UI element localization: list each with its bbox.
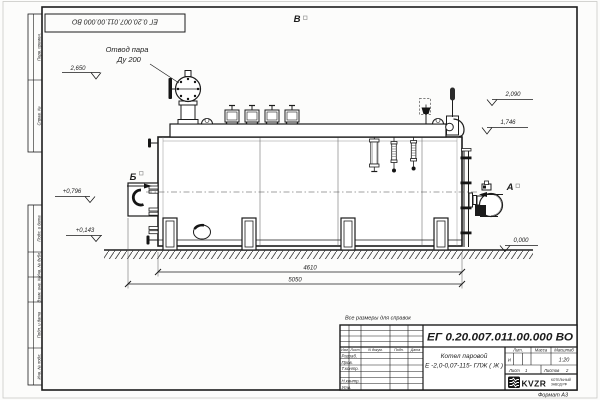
- sig-col: Изм: [341, 348, 348, 352]
- vent-valve: [148, 139, 158, 148]
- product-type: Е -2,0-0,07-115- ГЛЖ ( Ж ): [425, 364, 503, 370]
- svg-text:5050: 5050: [288, 278, 302, 284]
- sheet-value: 1: [525, 368, 527, 373]
- drawing-designation: ЕГ 0.20.007.011.00.000 ВО: [427, 332, 573, 344]
- sheet-label: Лист: [508, 368, 520, 373]
- scale-value: 1:20: [559, 358, 571, 364]
- logo-subtext: ЗАВОД РФ: [551, 383, 568, 387]
- burner-motor: [475, 205, 486, 216]
- ground-hatching: [104, 251, 533, 259]
- top-casing: [170, 124, 446, 137]
- svg-text:2,090: 2,090: [504, 92, 521, 98]
- gauge-column: [370, 137, 380, 172]
- svg-text:4610: 4610: [303, 266, 317, 272]
- hatch: [265, 106, 279, 125]
- drain-valve: [147, 236, 159, 245]
- svg-text:+0,143: +0,143: [76, 228, 95, 234]
- margin-label: Взам. инв. №: [37, 276, 42, 302]
- safety-valve: [446, 88, 464, 137]
- margin-label: Подп. и дата: [37, 311, 42, 338]
- svg-text:0,000: 0,000: [513, 238, 529, 244]
- boiler-drawing: Отвод пара Ду 200 В А Б 2,650 2,090: [55, 14, 538, 289]
- sig-col: Лист: [349, 348, 359, 352]
- sig-col: Подп.: [394, 348, 404, 352]
- ground-line: [104, 250, 533, 259]
- svg-text:2,650: 2,650: [69, 66, 86, 72]
- sig-row: Разраб.: [342, 354, 358, 359]
- drawing-sheet: Перв. примен. Справ. № Подп. и дата Инв.…: [0, 0, 600, 400]
- logo-subtext: КОТЕЛЬНЫЙ: [551, 378, 572, 382]
- format-note: Формат А3: [538, 393, 569, 399]
- steam-outlet-valve: [169, 71, 201, 125]
- top-stamp: ЕГ 0.20.007.011.00.000 ВО: [45, 14, 185, 32]
- elevation-0143: +0,143: [66, 228, 102, 242]
- svg-text:1,746: 1,746: [500, 120, 516, 126]
- sig-row: Т.контр.: [342, 366, 359, 371]
- dome-right: [433, 119, 444, 125]
- sig-col: Дата: [410, 348, 420, 352]
- manhole: [194, 225, 211, 239]
- margin-label: Справ. №: [37, 106, 42, 125]
- svg-text:Б: Б: [130, 172, 137, 183]
- top-stamp-code: ЕГ 0.20.007.011.00.000 ВО: [71, 18, 158, 25]
- title-block: Все размеры для справок ЕГ 0.20.007.011.…: [340, 316, 577, 399]
- sig-row: Утв.: [342, 385, 352, 390]
- hatch: [245, 106, 259, 125]
- svg-text:А: А: [506, 182, 514, 193]
- dome-left: [202, 119, 213, 125]
- sig-row: Пров.: [342, 360, 353, 365]
- svg-text:+0,796: +0,796: [63, 189, 82, 195]
- elevation-2650: 2,650: [62, 66, 101, 79]
- logo-text: KVZR: [522, 379, 547, 389]
- elevation-2090: 2,090: [487, 92, 533, 106]
- sheets-label: Листов: [543, 368, 560, 373]
- hatch: [225, 106, 239, 125]
- margin-label: Подп. и дата: [37, 215, 42, 242]
- col-mass: Масса: [535, 348, 548, 353]
- margin-label: Инв. № подл.: [37, 354, 42, 380]
- elevation-0796: +0,796: [55, 189, 95, 203]
- margin-strips: Перв. примен. Справ. № Подп. и дата Инв.…: [28, 14, 42, 385]
- view-marker-v: В: [294, 14, 307, 25]
- callout-text: Отвод пара: [106, 45, 149, 54]
- callout-steam-outlet: Отвод пара Ду 200: [106, 45, 179, 83]
- hatch: [285, 106, 299, 125]
- top-hatches: [225, 106, 299, 125]
- product-name: Котел паровой: [441, 352, 488, 360]
- dimension-5050: 5050: [125, 278, 465, 288]
- col-scale: Масштаб: [554, 348, 574, 353]
- col-lit: Лит.: [512, 348, 523, 353]
- svg-text:В: В: [294, 14, 301, 25]
- burner: [469, 181, 503, 217]
- margin-label: Перв. примен.: [37, 33, 42, 61]
- valve-handwheel: [169, 78, 173, 99]
- callout-text: Ду 200: [116, 55, 142, 64]
- sig-col: N докум.: [368, 348, 383, 352]
- sig-row: Н.контр.: [342, 379, 360, 384]
- elevation-1746: 1,746: [482, 120, 528, 134]
- reference-note: Все размеры для справок: [345, 316, 411, 322]
- support-leg: [163, 218, 177, 250]
- support-leg: [434, 218, 448, 250]
- support-leg: [341, 218, 355, 250]
- view-marker-b: Б: [127, 172, 152, 189]
- support-leg: [242, 218, 256, 250]
- margin-label: Инв. № дубл.: [37, 252, 42, 278]
